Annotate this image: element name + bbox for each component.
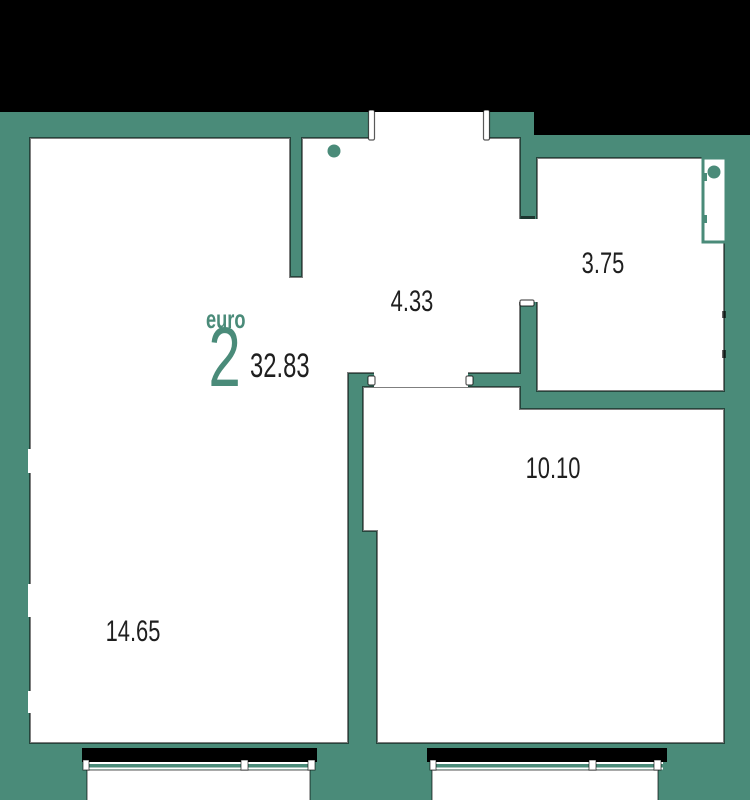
- room-area-kitchen-living: 10.10: [517, 454, 590, 484]
- window-bar-left: [82, 748, 317, 762]
- entry-door-jamb-left: [369, 110, 375, 140]
- unit-total-area: 32.83: [250, 350, 310, 382]
- exterior-mask-top-right: [534, 0, 750, 135]
- railing-post: [83, 760, 89, 770]
- kitchen-door-opening: [374, 371, 468, 387]
- vent-tick: [722, 350, 726, 358]
- railing-left-top-line: [84, 762, 314, 764]
- water-heater-tick: [702, 173, 707, 181]
- room-area-hallway: 4.33: [376, 287, 449, 317]
- water-heater-dot-icon: [708, 166, 721, 179]
- window-bar-right: [427, 748, 667, 762]
- railing-post: [241, 760, 248, 770]
- floor-plan: euro 2 32.83 4.33 3.75 10.10 14.65: [0, 0, 750, 800]
- vent-tick: [722, 311, 726, 318]
- kitchen-door-jamb-right: [466, 376, 473, 385]
- railing-post: [654, 760, 661, 770]
- room-area-bathroom: 3.75: [567, 249, 640, 279]
- radiator-tick: [28, 449, 32, 473]
- kitchen-door-jamb-left: [368, 376, 375, 385]
- bathroom-door-jamb-bottom: [520, 300, 534, 306]
- entry-door-opening: [373, 112, 486, 140]
- exterior-mask-top-left: [0, 0, 534, 112]
- room-area-living-room: 14.65: [97, 617, 170, 647]
- railing-post: [589, 760, 596, 770]
- entry-door-jamb-right: [484, 110, 490, 140]
- water-heater-tick: [702, 215, 707, 223]
- radiator-tick: [28, 584, 32, 617]
- door-pivot-dot-icon: [328, 145, 341, 158]
- railing-left-bottom-line: [84, 768, 314, 770]
- railing-right-bottom-line: [431, 768, 663, 770]
- railing-post: [308, 760, 315, 770]
- bathroom-door-jamb-top: [521, 216, 535, 219]
- floor-plan-geometry: [0, 0, 750, 800]
- room-kitchen-living: [363, 387, 724, 743]
- railing-post: [430, 760, 436, 770]
- balcony-right: [432, 770, 658, 800]
- railing-right-top-line: [431, 762, 663, 764]
- bathroom-door-opening: [518, 219, 539, 302]
- unit-rooms-count: 2: [209, 318, 238, 396]
- radiator-tick: [28, 691, 32, 713]
- balcony-left: [87, 770, 310, 800]
